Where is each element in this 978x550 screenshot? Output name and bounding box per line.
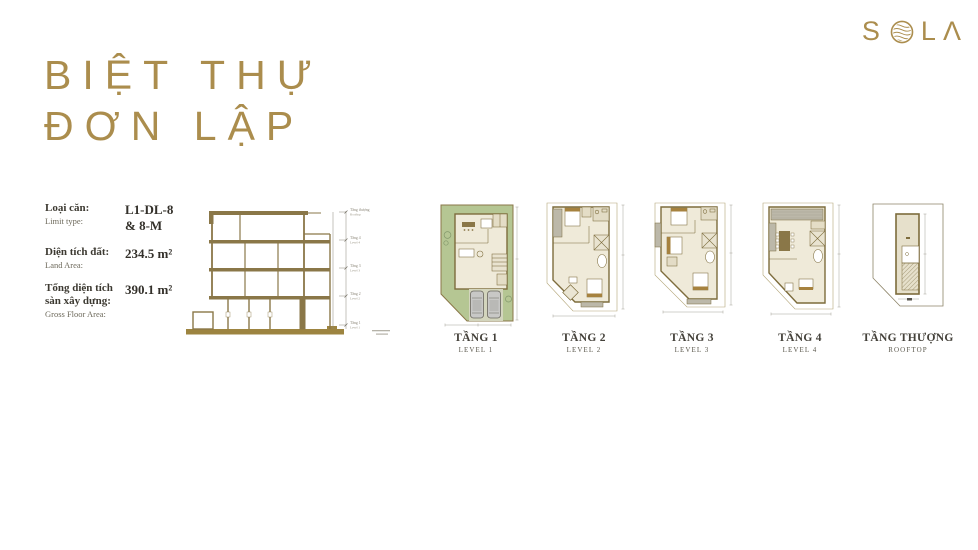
planter-wall [193,312,213,329]
svg-text:Rooftop: Rooftop [350,213,361,217]
level-label: Tầng thượng [350,208,370,212]
plan-label-level-3: TẦNG 3 LEVEL 3 [637,332,747,354]
floorplan-level-4-drawing [755,199,845,329]
dimension-lines [333,211,346,329]
floorplan-level-1-drawing [431,199,521,329]
spec-label-vi: Diện tích đất: [45,246,125,259]
brochure-page: BIỆT THỰ ĐƠN LẬP S L Λ Loại căn: Limit t… [0,0,978,550]
spec-label-en: Limit type: [45,216,125,226]
spec-row-gross-floor-area: Tổng diện tích sàn xây dựng: Gross Floor… [45,282,205,319]
spec-row-land-area: Diện tích đất: Land Area: 234.5 m² [45,246,205,270]
svg-text:Level 2: Level 2 [350,297,360,301]
svg-text:Level 3: Level 3 [350,269,360,273]
page-title-line2: ĐƠN LẬP [44,101,323,152]
spec-label-en: Gross Floor Area: [45,309,125,319]
floorplan-level-3-drawing [647,199,737,329]
level-label: Tầng 2 [350,292,361,296]
level-label: Tầng 4 [350,236,361,240]
floorplan-rooftop-drawing [863,199,953,329]
roof-terrace [771,209,823,220]
section-level-labels: Tầng thượng Rooftop Tầng 4 Level 4 Tầng … [350,208,370,330]
ground-line [186,329,344,335]
spec-label-en: Land Area: [45,260,125,270]
bathtub [598,255,607,268]
spec-value-gross-floor-area: 390.1 m² [125,282,172,319]
plan-label-level-2: TẦNG 2 LEVEL 2 [529,332,639,354]
logo-letter-a: Λ [943,16,964,47]
car-icon [471,291,484,318]
dining-table [779,231,790,251]
bathtub [814,250,823,263]
page-title: BIỆT THỰ ĐƠN LẬP [44,50,323,152]
level-label: Tầng 3 [350,264,361,268]
sola-o-wave-icon [889,19,915,45]
plan-label-level-1: TẦNG 1 LEVEL 1 [421,332,531,354]
section-elevation-svg: Tầng thượng Rooftop Tầng 4 Level 4 Tầng … [183,192,397,344]
balcony [769,223,776,251]
plan-label-rooftop: TẦNG THƯỢNG ROOFTOP [853,332,963,354]
spec-value-unit-type: L1-DL-8 & 8-M [125,202,173,234]
bathtub [706,251,715,263]
sola-logo: S L Λ [862,16,964,47]
kitchen-island [462,222,475,227]
svg-text:Level 1: Level 1 [350,326,360,330]
balcony [553,209,562,237]
page-title-line1: BIỆT THỰ [44,50,323,101]
stair-bulkhead [902,246,919,263]
plan-label-level-4: TẦNG 4 LEVEL 4 [745,332,855,354]
balcony [687,299,711,304]
level-label: Tầng 1 [350,321,361,325]
spec-label-vi: Tổng diện tích sàn xây dựng: [45,282,125,308]
spec-value-land-area: 234.5 m² [125,246,172,270]
car-icon [488,291,501,318]
spec-row-unit-type: Loại căn: Limit type: L1-DL-8 & 8-M [45,202,205,234]
stairs [492,254,507,271]
sofa [459,249,474,257]
svg-text:Level 4: Level 4 [350,241,360,245]
balcony [655,223,661,247]
logo-letter-l: L [921,16,939,47]
spec-label-vi: Loại căn: [45,202,125,215]
hatched-terrace [902,263,919,290]
unit-specs: Loại căn: Limit type: L1-DL-8 & 8-M Diện… [45,202,205,331]
floorplan-level-2-drawing [539,199,629,329]
roof-slab [209,211,308,215]
balcony [581,302,603,307]
logo-letter-s: S [862,16,883,47]
building-section-drawing: Tầng thượng Rooftop Tầng 4 Level 4 Tầng … [183,192,397,344]
